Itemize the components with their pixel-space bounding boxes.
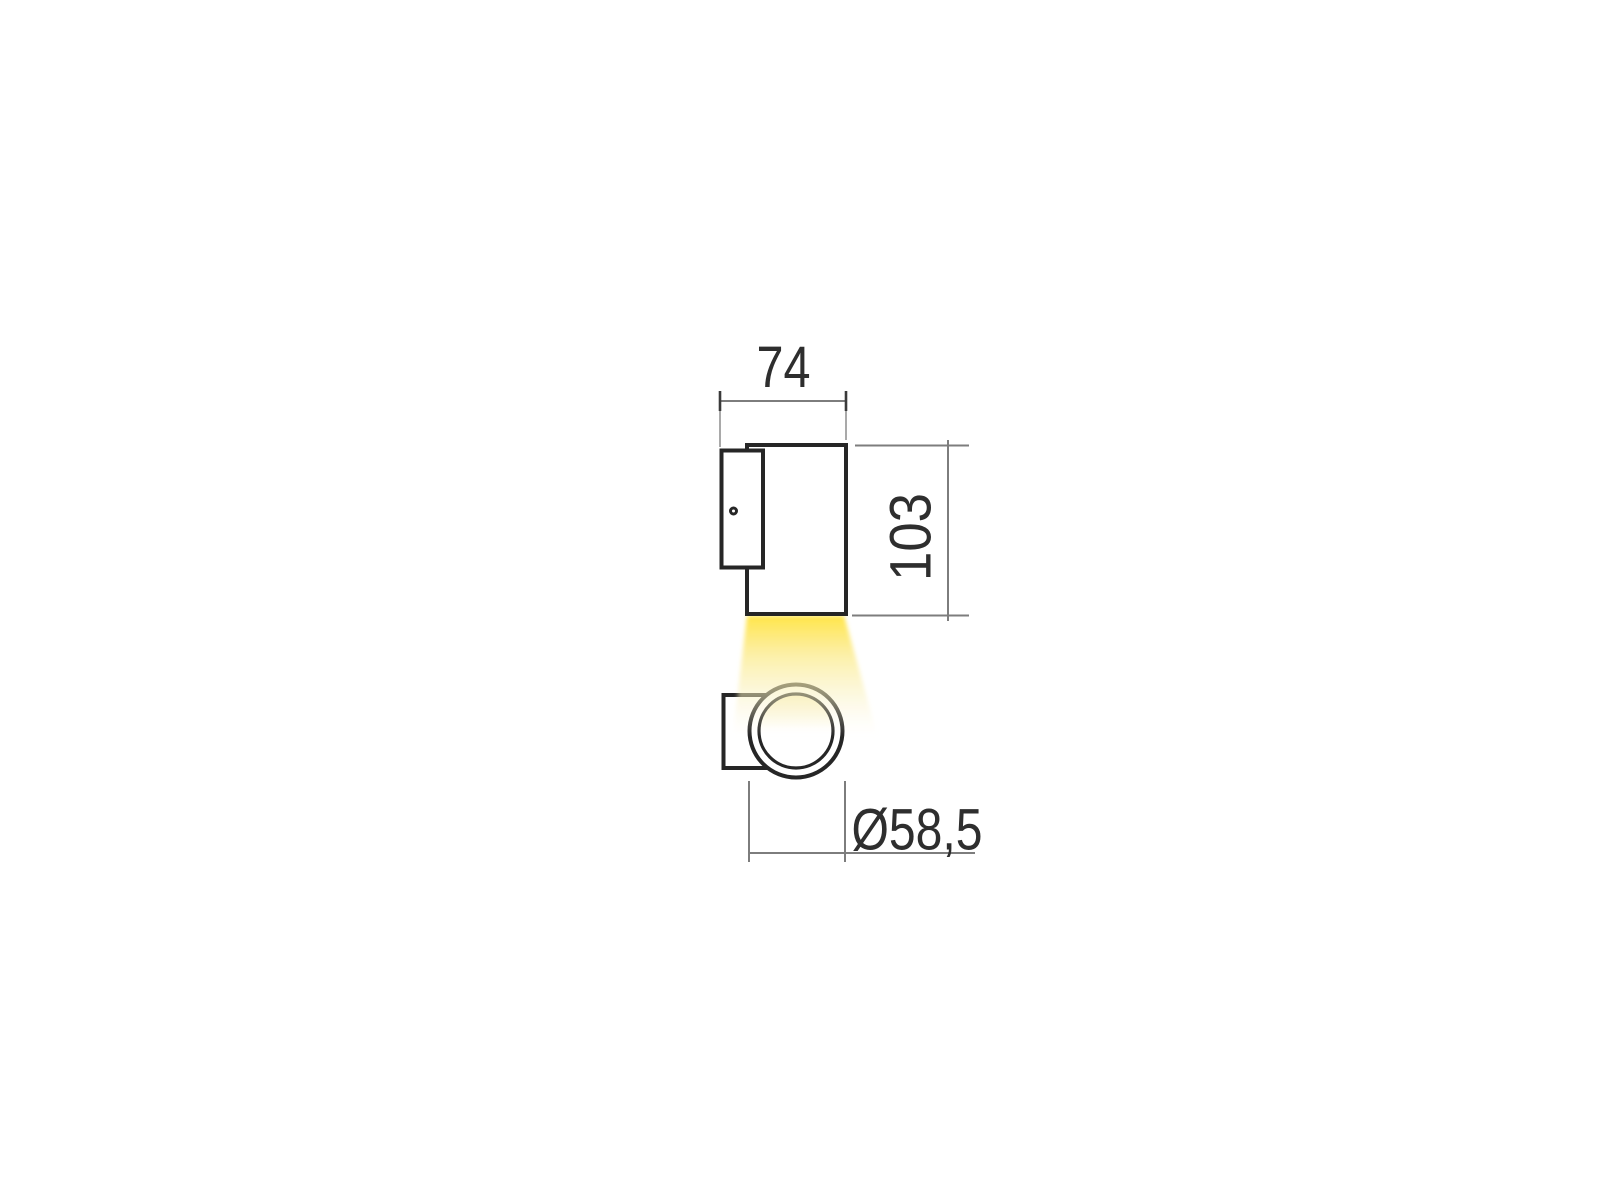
dimension-width-label: 74 — [757, 335, 811, 400]
light-beam — [733, 616, 877, 735]
dimension-drawing: 74 103 Ø58,5 — [0, 0, 1600, 1200]
dimension-diameter-label: Ø58,5 — [852, 798, 983, 863]
dimension-diameter: Ø58,5 — [749, 781, 983, 863]
side-view — [722, 445, 847, 614]
dimension-width: 74 — [720, 335, 846, 447]
dimension-height: 103 — [852, 440, 969, 621]
drawing-canvas: 74 103 Ø58,5 — [0, 0, 1600, 1200]
wall-mount-plate — [722, 451, 764, 568]
dimension-height-label: 103 — [879, 493, 944, 581]
